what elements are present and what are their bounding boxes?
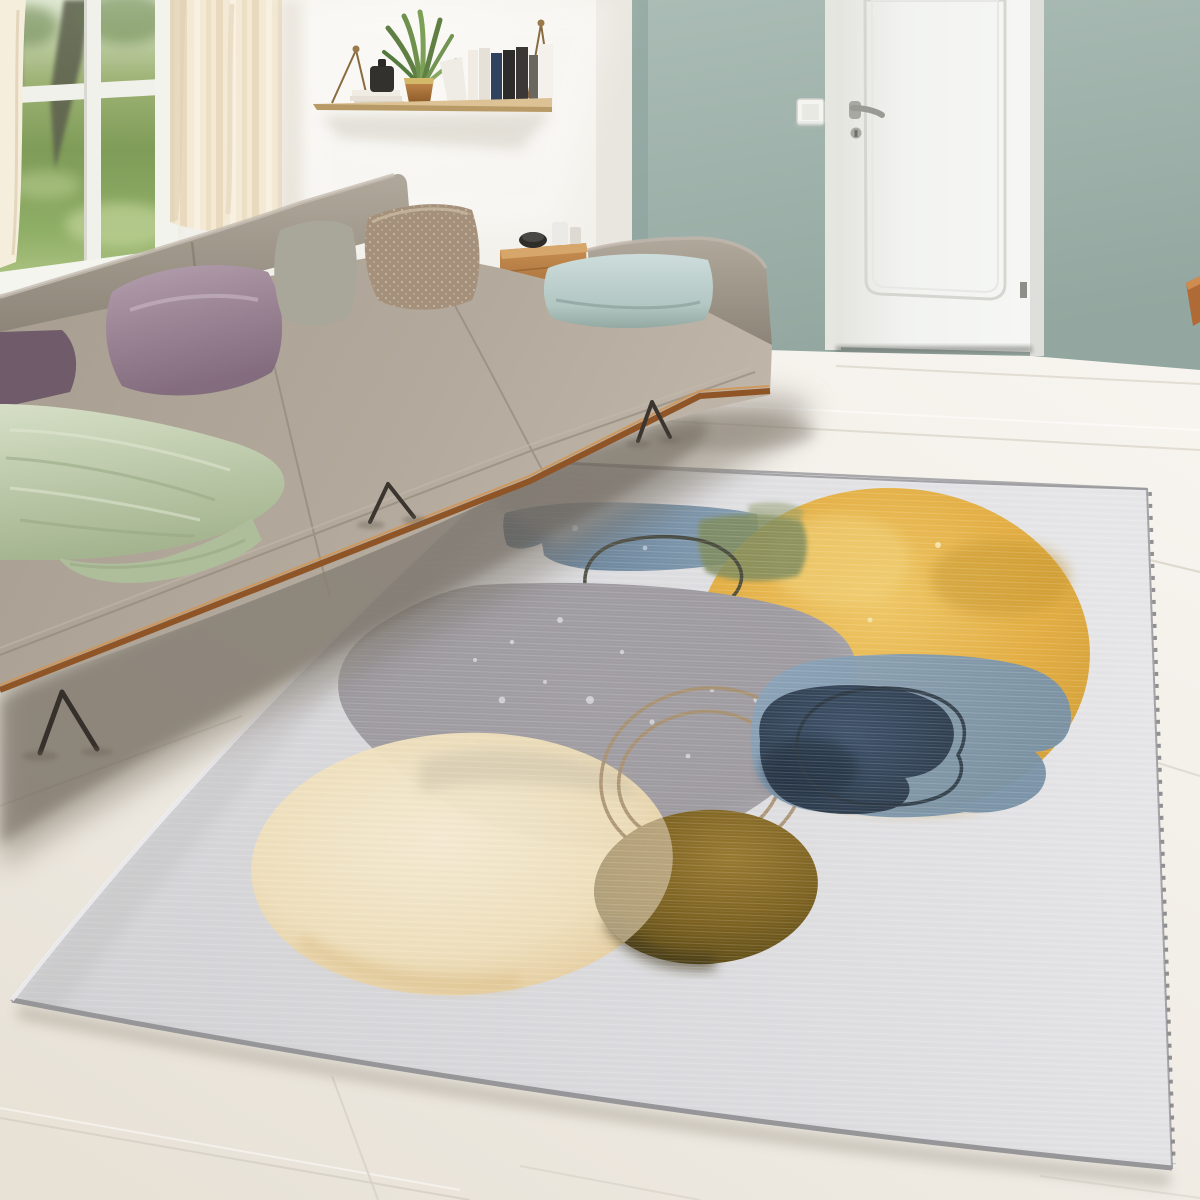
decor-glass <box>570 227 581 244</box>
scene-canvas <box>0 0 1200 1200</box>
mullion-shade <box>84 0 87 268</box>
hanger-knob-right <box>538 20 545 27</box>
switch-shadow <box>795 123 824 127</box>
door-jamb-right <box>1030 0 1044 356</box>
pillow-mauve <box>106 265 282 395</box>
canister-knob <box>378 59 386 67</box>
light-switch[interactable] <box>795 99 824 127</box>
pot-rim <box>404 78 434 84</box>
decor-cup <box>552 222 568 245</box>
curtain-wall-shadow <box>280 0 302 225</box>
bowl-rim <box>522 232 544 242</box>
living-room-photo <box>0 0 1200 1200</box>
pillow-beige-dotted <box>365 204 480 310</box>
hanger-knob-left <box>353 46 360 53</box>
door-hinge <box>1020 282 1027 298</box>
sheer-curtain <box>170 0 282 231</box>
beige-dot-texture <box>365 204 480 310</box>
switch-rocker[interactable] <box>802 104 819 120</box>
keyhole-slot <box>855 130 858 137</box>
curtain-fold-line <box>228 4 232 214</box>
pillow-sage <box>274 221 357 326</box>
door-bottom-shadow <box>836 346 1032 353</box>
pillow-light-blue <box>544 254 713 328</box>
book-row <box>468 44 553 106</box>
interior-door <box>825 0 1044 356</box>
